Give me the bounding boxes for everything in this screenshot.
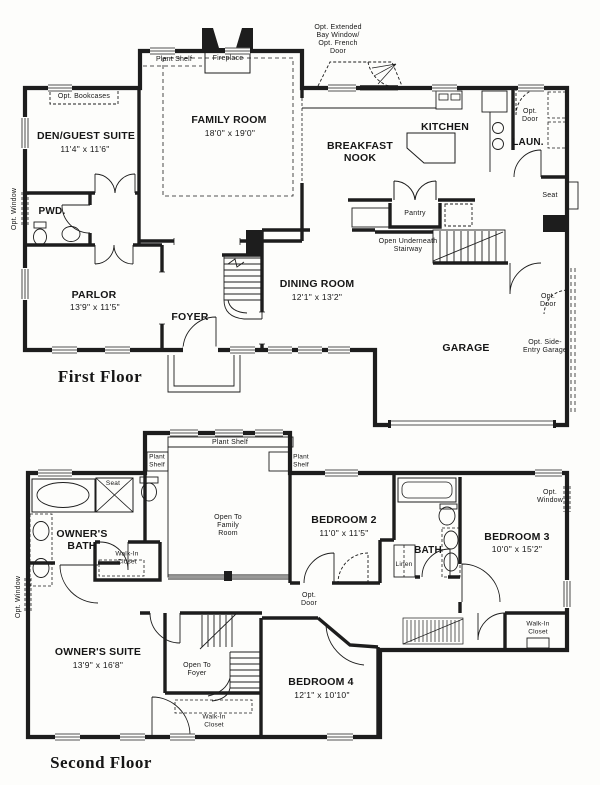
bedroom2-dims: 11'0" x 11'5" bbox=[319, 529, 368, 539]
opt-window-note-sf: Opt. Window bbox=[15, 576, 23, 618]
opt-door-note-sf: Opt. Door bbox=[295, 592, 323, 608]
plant-shelf-note-ff: Plant Shelf bbox=[156, 56, 192, 64]
breakfast-nook-label: BREAKFAST NOOK bbox=[320, 140, 400, 164]
open-to-foyer-note: Open To Foyer bbox=[177, 662, 217, 678]
family-room-dims: 18'0" x 19'0" bbox=[205, 129, 256, 139]
second-floor-caption: Second Floor bbox=[50, 753, 152, 773]
owners-bath-label: OWNER'S BATH bbox=[49, 528, 115, 552]
owners-walkin-closet-note: Walk-In Closet bbox=[110, 550, 144, 565]
opt-bookcases-note: Opt. Bookcases bbox=[58, 93, 110, 101]
open-underneath-stairway-note: Open Underneath Stairway bbox=[372, 238, 444, 254]
opt-window-note-bed3: Opt. Window bbox=[530, 489, 570, 505]
opt-bay-window-note: Opt. Extended Bay Window/ Opt. French Do… bbox=[312, 24, 364, 56]
garage-label: GARAGE bbox=[442, 342, 489, 354]
plant-shelf-note-right: Plant Shelf bbox=[289, 453, 313, 468]
bedroom2-label: BEDROOM 2 bbox=[311, 514, 376, 526]
linen-note: Linen bbox=[396, 561, 413, 569]
foyer-label: FOYER bbox=[171, 311, 208, 323]
bedroom3-label: BEDROOM 3 bbox=[484, 531, 549, 543]
floor-plan-page: DEN/GUEST SUITE 11'4" x 11'6" FAMILY ROO… bbox=[0, 0, 600, 785]
laundry-label: LAUN. bbox=[512, 137, 544, 149]
kitchen-label: KITCHEN bbox=[421, 121, 469, 133]
owners-suite-dims: 13'9" x 16'8" bbox=[73, 661, 124, 671]
parlor-dims: 13'9" x 11'5" bbox=[70, 303, 120, 313]
owners-suite-label: OWNER'S SUITE bbox=[55, 646, 141, 658]
family-room-label: FAMILY ROOM bbox=[191, 114, 266, 126]
bottom-walkin-closet-note: Walk-In Closet bbox=[197, 713, 231, 728]
first-floor-caption: First Floor bbox=[58, 367, 142, 387]
seat-note-ff: Seat bbox=[542, 192, 557, 200]
open-to-family-room-note: Open To Family Room bbox=[207, 514, 249, 538]
plant-shelf-note-left: Plant Shelf bbox=[145, 453, 169, 468]
dining-room-dims: 12'1" x 13'2" bbox=[292, 293, 343, 303]
bath-label: BATH bbox=[414, 545, 442, 557]
fireplace-note: Fireplace bbox=[213, 55, 244, 63]
bedroom4-dims: 12'1" x 10'10" bbox=[294, 691, 350, 701]
pantry-note: Pantry bbox=[404, 210, 425, 218]
seat-note-sf: Seat bbox=[106, 480, 120, 488]
bedroom4-label: BEDROOM 4 bbox=[288, 676, 353, 688]
den-room-dims: 11'4" x 11'6" bbox=[60, 145, 109, 155]
powder-room-label: PWD. bbox=[39, 206, 66, 218]
dining-room-label: DINING ROOM bbox=[280, 278, 355, 290]
opt-window-note-ff: Opt. Window bbox=[11, 188, 19, 230]
bedroom3-dims: 10'0" x 15'2" bbox=[492, 545, 543, 555]
den-room-label: DEN/GUEST SUITE bbox=[37, 130, 135, 142]
opt-door-garage-note: Opt. Door bbox=[534, 293, 562, 309]
right-walkin-closet-note: Walk-In Closet bbox=[521, 620, 555, 635]
opt-door-laundry-note: Opt. Door bbox=[515, 108, 545, 124]
opt-side-entry-garage-note: Opt. Side-Entry Garage bbox=[522, 339, 568, 355]
parlor-label: PARLOR bbox=[72, 289, 117, 301]
plant-shelf-note-top: Plant Shelf bbox=[212, 439, 248, 447]
